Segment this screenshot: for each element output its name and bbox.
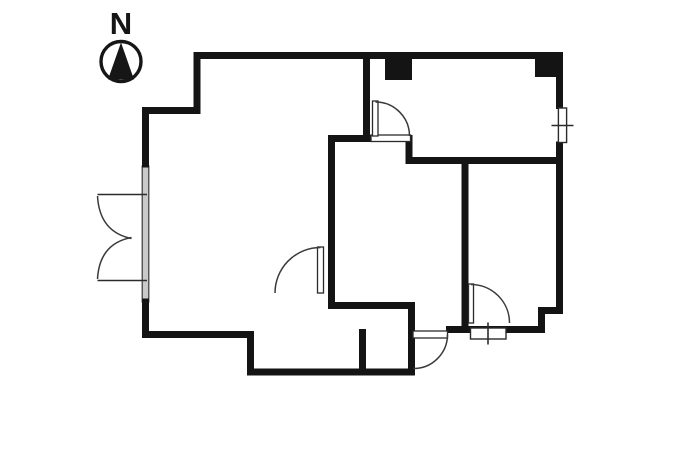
door-leaf-entrance — [413, 331, 448, 338]
north-label: N — [110, 6, 132, 41]
floor-plan-svg: N — [0, 0, 700, 467]
door-leaf-east-room — [469, 284, 474, 323]
glass-cap-top — [142, 164, 149, 168]
glass-cap-bottom — [142, 299, 149, 303]
door-leaf-mid-west — [318, 247, 324, 293]
pillar-bedroom-left — [385, 56, 412, 80]
floor-plan-elements — [98, 42, 574, 376]
floor-plan-page: N — [0, 0, 700, 467]
door-arc-east-room — [471, 285, 510, 324]
pillar-bedroom-right — [535, 56, 558, 77]
balcony-door-arc-bottom — [98, 238, 132, 280]
door-arc-entrance — [414, 335, 448, 369]
north-needle-icon — [108, 43, 134, 80]
glass-door-panel — [142, 166, 149, 302]
balcony-door-arc-top — [98, 196, 132, 239]
door-arc-bedroom — [376, 102, 410, 136]
door-arc-mid-west — [275, 248, 321, 294]
door-leaf-bedroom — [373, 101, 379, 136]
